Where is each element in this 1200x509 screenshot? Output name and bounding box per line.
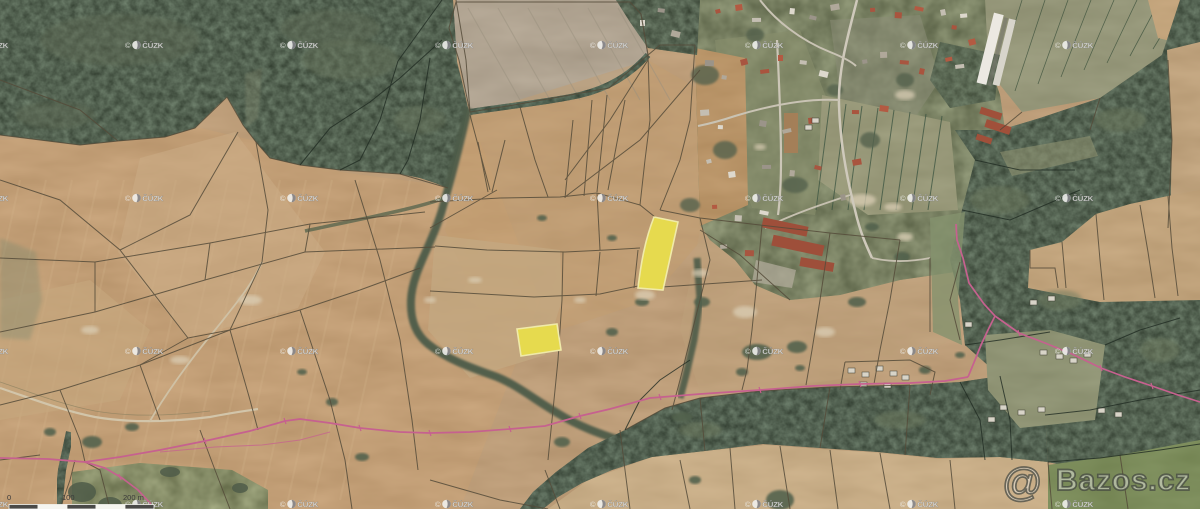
svg-text:©: © — [590, 500, 596, 509]
svg-text:©: © — [435, 194, 441, 203]
svg-text:100: 100 — [62, 493, 75, 502]
svg-text:ČÚZK: ČÚZK — [607, 500, 628, 509]
svg-text:©: © — [435, 347, 441, 356]
svg-text:ČÚZK: ČÚZK — [607, 347, 628, 356]
svg-text:©: © — [1055, 347, 1061, 356]
svg-text:ČÚZK: ČÚZK — [297, 500, 318, 509]
svg-text:©: © — [590, 41, 596, 50]
svg-text:ČÚZK: ČÚZK — [1072, 500, 1093, 509]
svg-text:ČÚZK: ČÚZK — [297, 41, 318, 50]
svg-text:ČÚZK: ČÚZK — [607, 194, 628, 203]
svg-text:©: © — [280, 194, 286, 203]
svg-text:ČÚZK: ČÚZK — [607, 41, 628, 50]
svg-text:©: © — [745, 500, 751, 509]
svg-text:ČÚZK: ČÚZK — [917, 347, 938, 356]
svg-text:Bazos.cz: Bazos.cz — [1056, 464, 1191, 497]
svg-text:©: © — [435, 500, 441, 509]
svg-text:©: © — [745, 347, 751, 356]
svg-text:©: © — [280, 347, 286, 356]
svg-text:©: © — [900, 194, 906, 203]
svg-text:ČÚZK: ČÚZK — [452, 500, 473, 509]
svg-text:ČÚZK: ČÚZK — [142, 41, 163, 50]
svg-text:0: 0 — [7, 493, 11, 502]
svg-text:ČÚZK: ČÚZK — [452, 41, 473, 50]
svg-text:@: @ — [1002, 461, 1043, 505]
svg-text:ČÚZK: ČÚZK — [1072, 41, 1093, 50]
svg-text:©: © — [280, 41, 286, 50]
svg-text:ČÚZK: ČÚZK — [452, 347, 473, 356]
svg-text:©: © — [745, 194, 751, 203]
svg-text:ČÚZK: ČÚZK — [917, 500, 938, 509]
svg-text:©: © — [1055, 500, 1061, 509]
svg-text:©: © — [745, 41, 751, 50]
svg-text:ČÚZK: ČÚZK — [452, 194, 473, 203]
svg-text:ČÚZK: ČÚZK — [917, 41, 938, 50]
svg-text:©: © — [900, 500, 906, 509]
svg-text:ČÚZK: ČÚZK — [762, 500, 783, 509]
svg-text:ČÚZK: ČÚZK — [297, 347, 318, 356]
svg-text:ČÚZK: ČÚZK — [917, 194, 938, 203]
svg-text:©: © — [280, 500, 286, 509]
svg-text:ČÚZK: ČÚZK — [762, 41, 783, 50]
svg-text:ČÚZK: ČÚZK — [762, 194, 783, 203]
svg-text:©: © — [590, 194, 596, 203]
svg-text:©: © — [435, 41, 441, 50]
svg-text:©: © — [125, 347, 131, 356]
svg-text:©: © — [900, 347, 906, 356]
svg-text:ČÚZK: ČÚZK — [0, 41, 9, 50]
svg-text:©: © — [125, 41, 131, 50]
svg-text:ČÚZK: ČÚZK — [297, 194, 318, 203]
svg-text:ČÚZK: ČÚZK — [762, 347, 783, 356]
svg-text:200 m: 200 m — [123, 493, 144, 502]
svg-text:ČÚZK: ČÚZK — [0, 194, 9, 203]
svg-text:©: © — [1055, 41, 1061, 50]
svg-text:ČÚZK: ČÚZK — [142, 194, 163, 203]
svg-text:ČÚZK: ČÚZK — [1072, 347, 1093, 356]
svg-text:ČÚZK: ČÚZK — [1072, 194, 1093, 203]
svg-text:©: © — [1055, 194, 1061, 203]
svg-text:©: © — [125, 194, 131, 203]
svg-text:ČÚZK: ČÚZK — [142, 347, 163, 356]
svg-text:©: © — [590, 347, 596, 356]
svg-text:©: © — [900, 41, 906, 50]
svg-text:ČÚZK: ČÚZK — [0, 347, 9, 356]
